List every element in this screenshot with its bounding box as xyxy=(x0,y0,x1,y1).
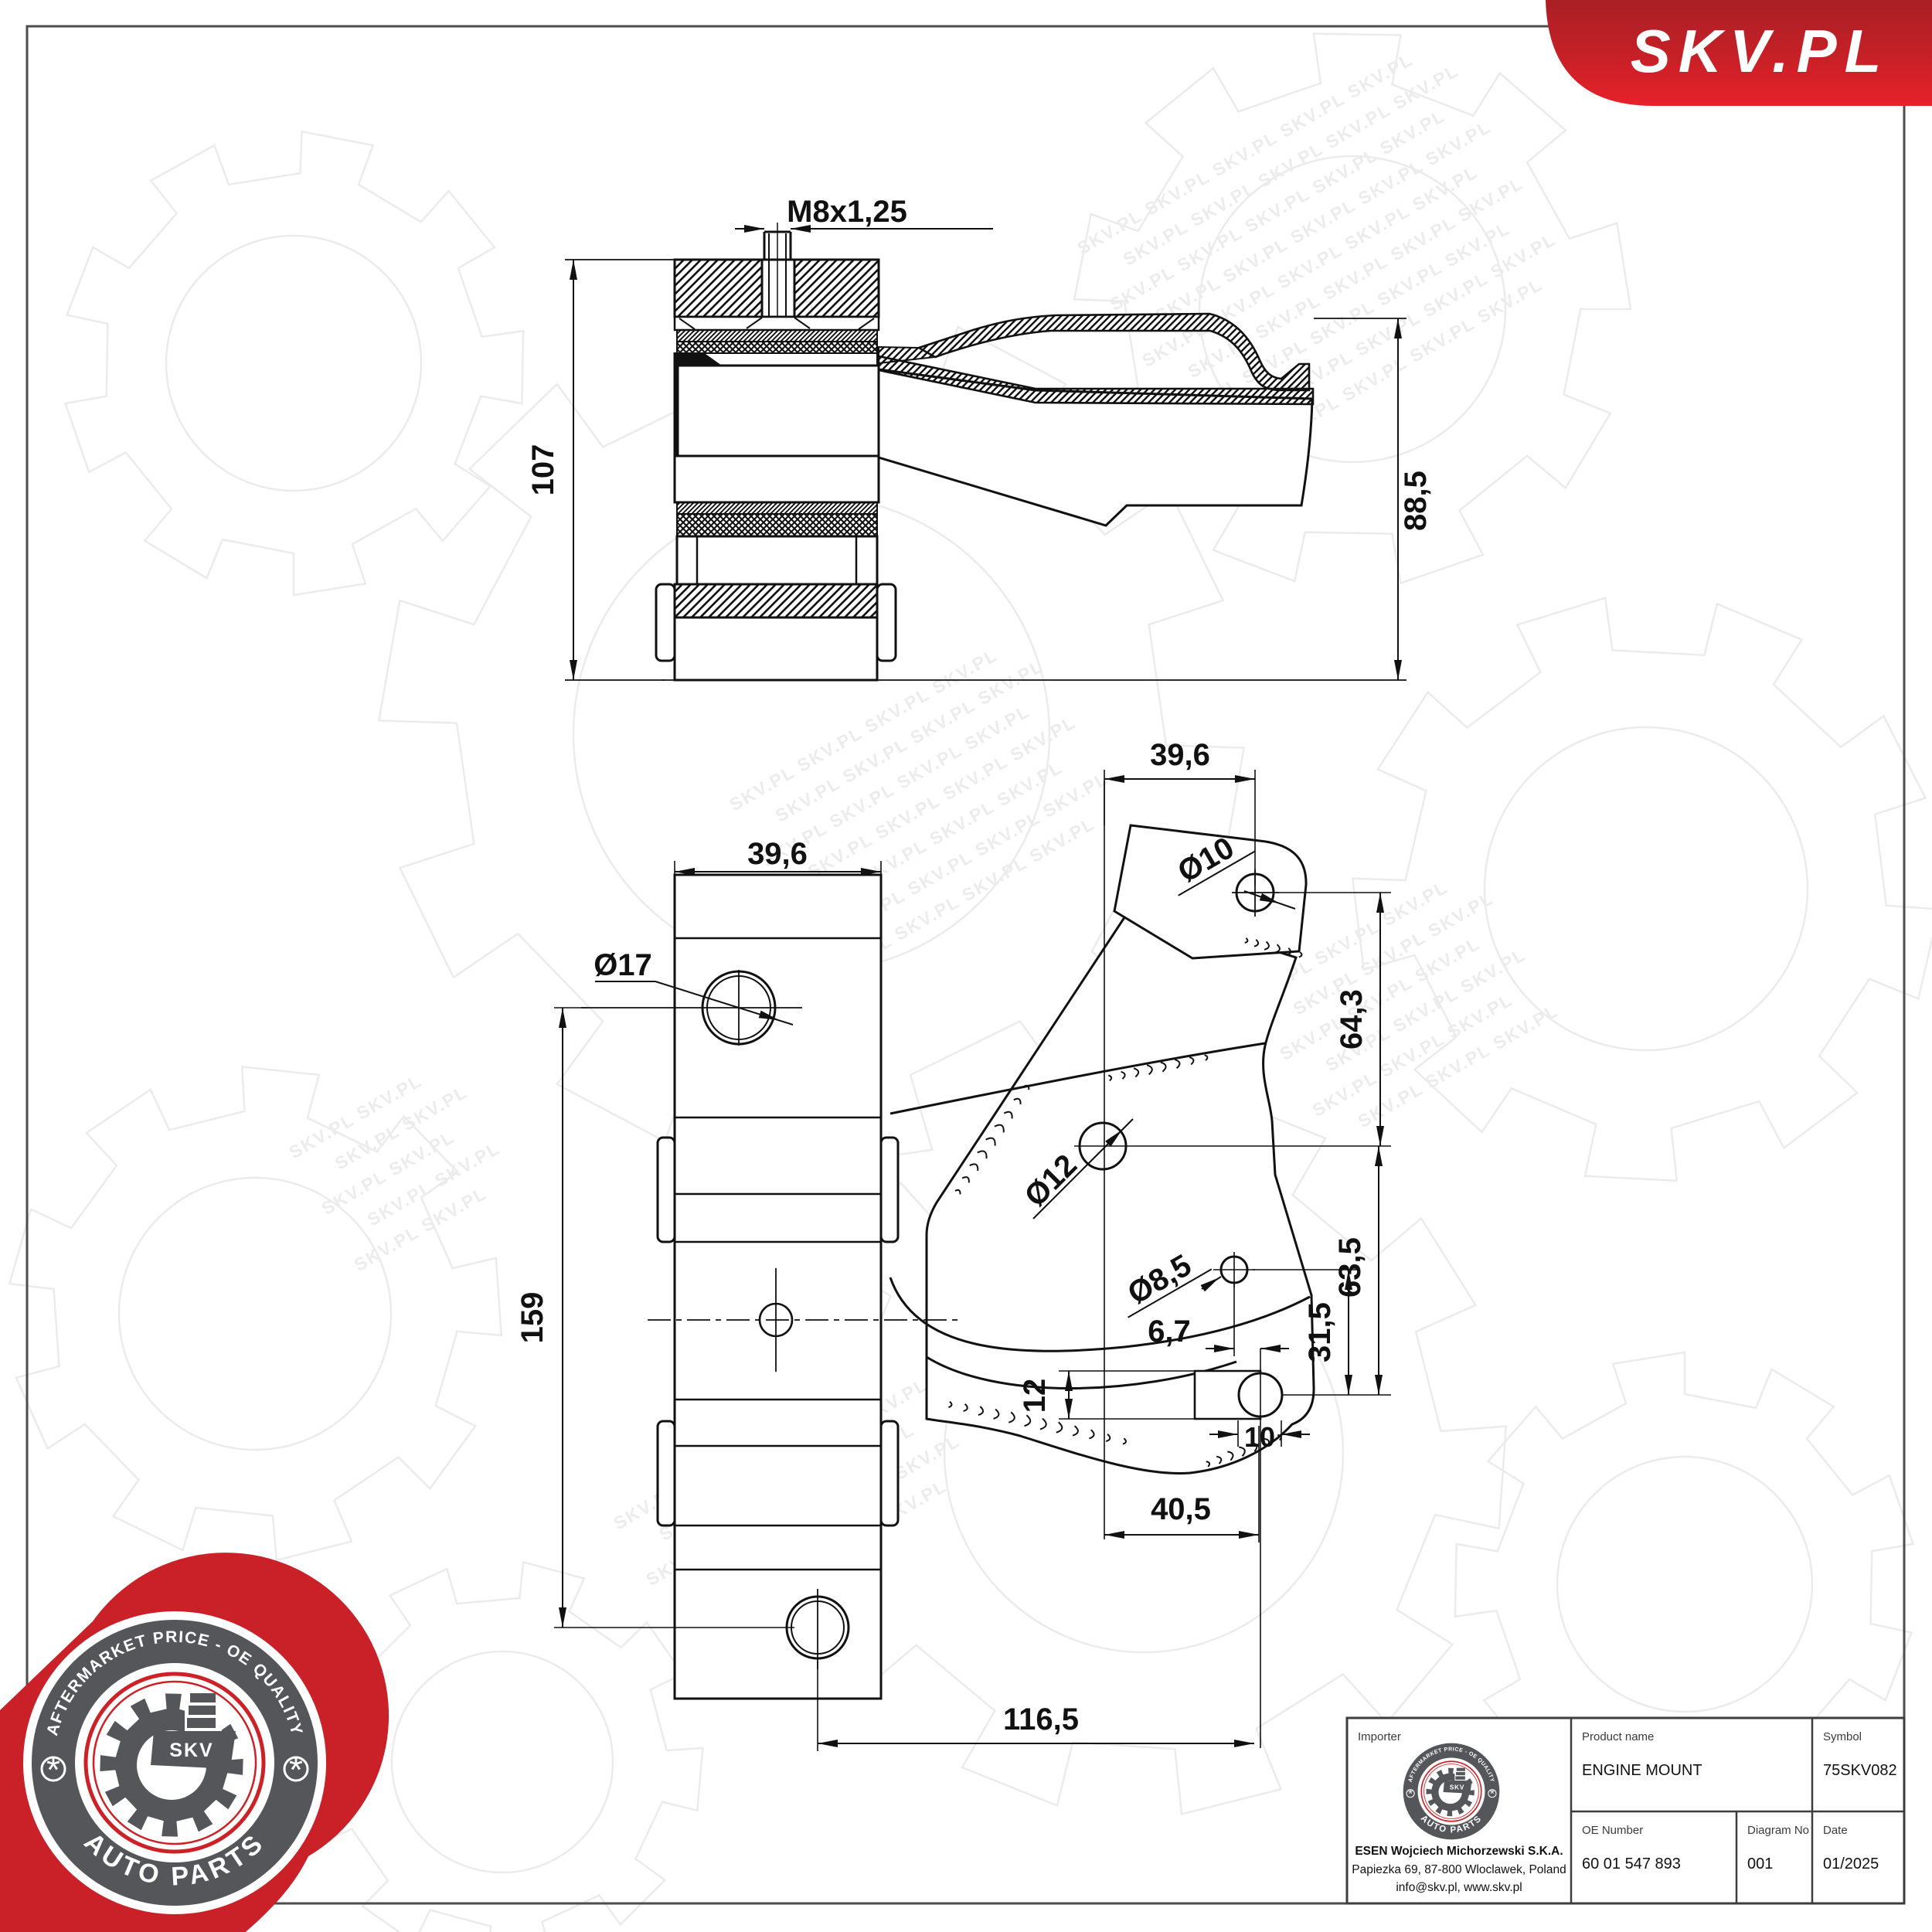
svg-text:SKV: SKV xyxy=(1450,1783,1464,1791)
svg-text:01/2025: 01/2025 xyxy=(1823,1855,1879,1872)
svg-text:Symbol: Symbol xyxy=(1823,1730,1862,1743)
svg-text:64,3: 64,3 xyxy=(1335,989,1369,1049)
svg-text:12: 12 xyxy=(1018,1379,1052,1413)
svg-text:*: * xyxy=(1490,1787,1495,1801)
svg-text:39,6: 39,6 xyxy=(747,837,808,871)
svg-text:88,5: 88,5 xyxy=(1399,471,1433,531)
svg-text:Diagram No: Diagram No xyxy=(1747,1824,1809,1837)
svg-text:75SKV082: 75SKV082 xyxy=(1823,1762,1897,1779)
svg-text:Ø17: Ø17 xyxy=(594,948,652,982)
svg-text:ENGINE MOUNT: ENGINE MOUNT xyxy=(1582,1762,1702,1779)
svg-text:60 01 547 893: 60 01 547 893 xyxy=(1582,1855,1681,1872)
svg-text:Date: Date xyxy=(1823,1824,1848,1837)
svg-text:OE Number: OE Number xyxy=(1582,1824,1643,1837)
svg-text:Product name: Product name xyxy=(1582,1730,1654,1743)
svg-text:Importer: Importer xyxy=(1358,1730,1401,1743)
svg-text:info@skv.pl, www.skv.pl: info@skv.pl, www.skv.pl xyxy=(1396,1881,1522,1894)
svg-text:ESEN Wojciech Michorzewski S.K: ESEN Wojciech Michorzewski S.K.A. xyxy=(1355,1845,1563,1858)
svg-text:*: * xyxy=(46,1750,60,1790)
svg-text:M8x1,25: M8x1,25 xyxy=(787,195,907,229)
svg-text:40,5: 40,5 xyxy=(1151,1492,1211,1526)
svg-text:107: 107 xyxy=(526,444,560,496)
svg-text:116,5: 116,5 xyxy=(1003,1702,1079,1736)
svg-text:*: * xyxy=(289,1750,303,1790)
svg-text:*: * xyxy=(1408,1787,1413,1801)
svg-text:SKV: SKV xyxy=(169,1740,213,1761)
svg-text:39,6: 39,6 xyxy=(1150,738,1210,772)
svg-text:6,7: 6,7 xyxy=(1148,1315,1191,1349)
svg-text:159: 159 xyxy=(515,1292,549,1344)
svg-text:10: 10 xyxy=(1244,1421,1275,1453)
svg-text:Papiezka 69, 87-800 Wloclawek,: Papiezka 69, 87-800 Wloclawek, Poland xyxy=(1352,1863,1566,1876)
svg-text:SKV.PL: SKV.PL xyxy=(1631,17,1889,85)
svg-text:001: 001 xyxy=(1747,1855,1773,1872)
svg-text:31,5: 31,5 xyxy=(1303,1302,1337,1362)
